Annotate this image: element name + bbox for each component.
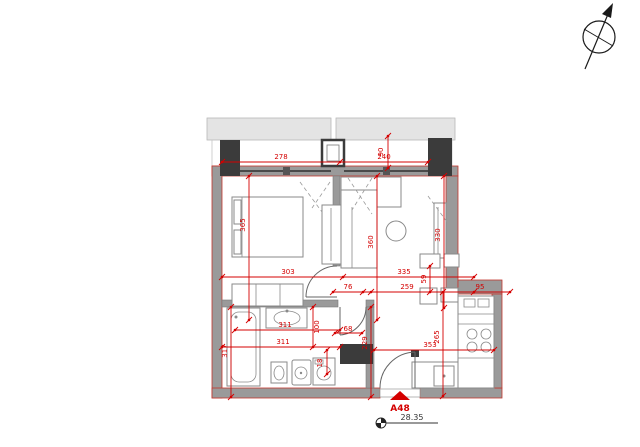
dim-bath-width-top: 311: [278, 321, 291, 329]
north-arrow-icon: [583, 3, 615, 69]
dim-kitchen-depth: 265: [433, 330, 441, 343]
dim-niche-width: 95: [476, 283, 485, 291]
dim-living-depth: 360: [367, 235, 375, 248]
dim-bath-width-bottom: 311: [276, 338, 289, 346]
dim-living-width: 335: [397, 268, 410, 276]
dim-hall-depth: 229: [361, 336, 369, 349]
dim-top-niche-depth: 90: [377, 148, 385, 157]
dim-bath-depth: 317: [221, 344, 229, 357]
dim-bath-partition: 100: [313, 320, 321, 333]
dim-bath-door: 68: [344, 325, 353, 333]
floor-plan: 278 240 90 365 303 360 335 330 59 76 259…: [0, 0, 640, 447]
dim-top-left: 278: [274, 153, 287, 161]
dim-bedroom-depth: 365: [239, 218, 247, 231]
dim-living-right-depth: 330: [434, 228, 442, 241]
dim-door-clearance: 76: [344, 283, 353, 291]
dim-step-depth: 59: [420, 275, 428, 284]
floor-plan-drawing: 278 240 90 365 303 360 335 330 59 76 259…: [0, 0, 640, 447]
level-value: 28.35: [401, 413, 424, 422]
dim-bedroom-width: 303: [281, 268, 294, 276]
dim-washer-gap: 18: [316, 359, 324, 368]
dim-hall-span: 259: [400, 283, 413, 291]
entrance-door: [380, 352, 415, 388]
